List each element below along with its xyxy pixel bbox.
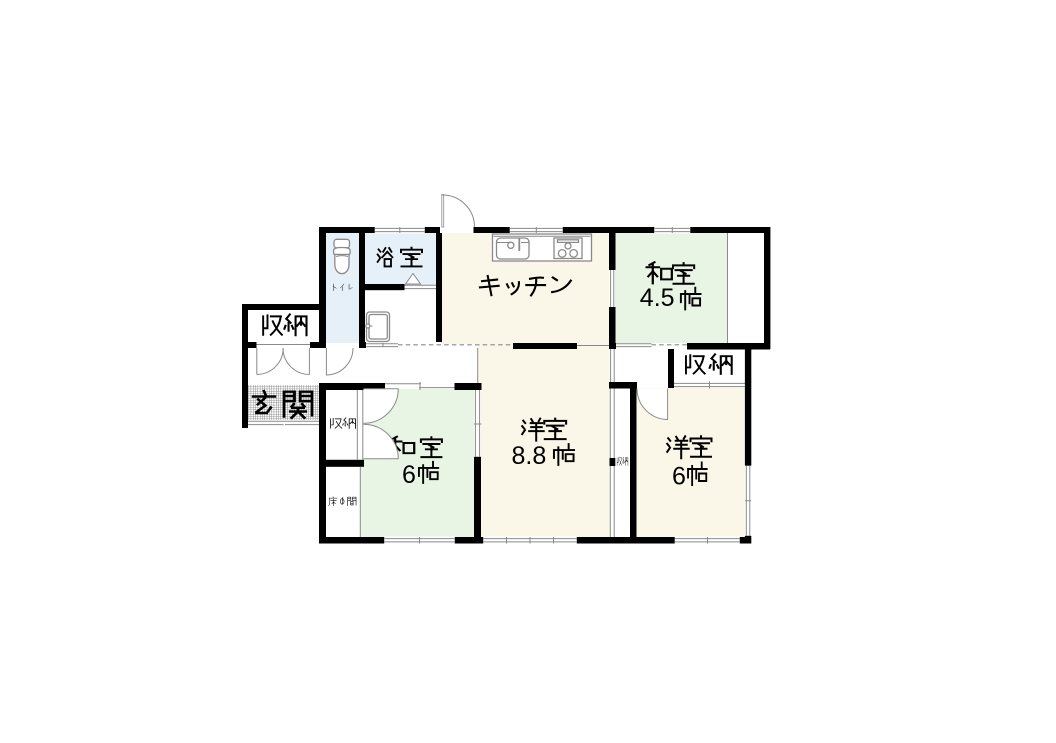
svg-text:6: 6	[672, 463, 686, 491]
svg-text:8.8: 8.8	[512, 442, 547, 470]
svg-text:4.5: 4.5	[640, 284, 675, 312]
svg-text:6: 6	[402, 461, 416, 489]
